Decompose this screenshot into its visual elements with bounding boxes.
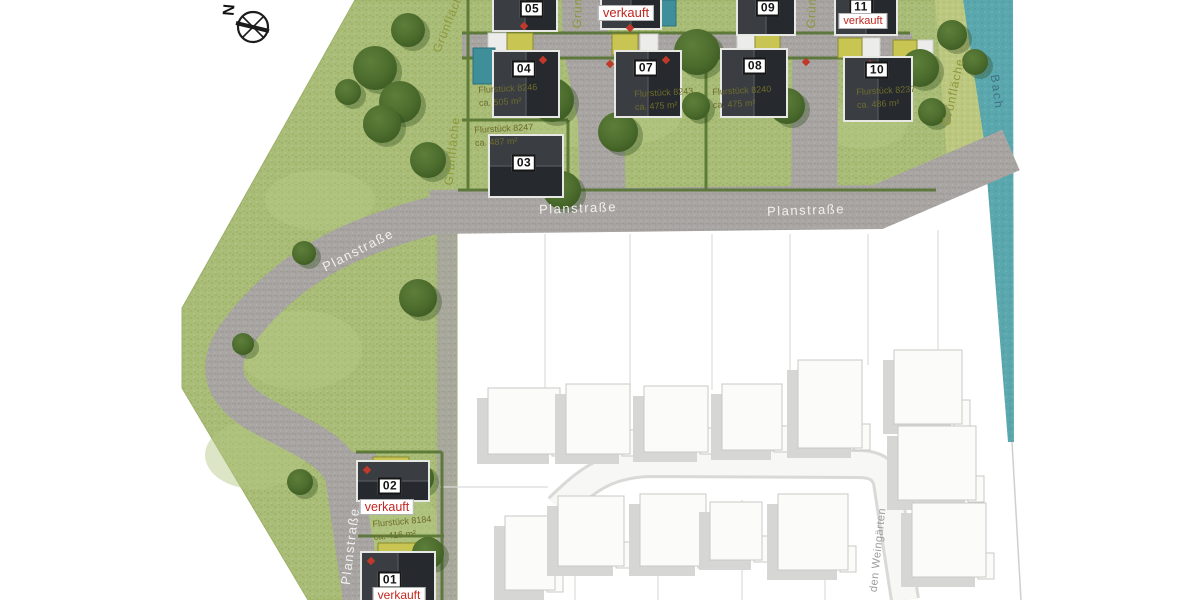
sold-badge-house-02: verkauft [360,499,414,515]
tree [410,142,446,178]
existing-building [798,360,862,448]
existing-building [558,496,624,566]
compass-icon [236,12,269,42]
tree [232,333,254,355]
tree [292,241,316,265]
tree [363,105,401,143]
existing-building [722,384,782,450]
house-number-plaque-03: 03 [512,155,536,172]
compass-north-label: N [221,3,240,16]
house-number-plaque-05: 05 [520,1,544,18]
parcel-label-house-07: Flurstück 8243 ca. 475 m² [634,85,694,114]
sold-badge-house-01: verkauft [373,587,426,600]
house-number-plaque-07: 07 [634,60,658,77]
site-plan: N Planstraße Planstraße Planstraße Plans… [0,0,1200,600]
tree [399,279,437,317]
green-area-label-access-road-1: Grünfläche [570,0,586,29]
tree [391,13,425,47]
tree [937,20,967,50]
parcel-label-house-03: Flurstück 8247 ca. 487 m² [474,121,534,150]
site-plan-graphic [0,0,1200,600]
street-label-planstrasse-main-east: Planstraße [767,201,845,219]
house-number-plaque-10: 10 [865,62,889,79]
parcel-label-house-02: Flurstück 8184 ca. 416 m² [372,513,433,544]
house-number-plaque-01: 01 [378,572,402,589]
existing-building [640,494,706,566]
tree [335,79,361,105]
house-number-plaque-02: 02 [378,478,402,495]
garage-box [838,38,862,58]
existing-building [898,426,976,500]
parcel-label-house-08: Flurstück 8240 ca. 475 m² [712,83,772,112]
street-label-planstrasse-main-west: Planstraße [539,199,617,217]
green-area-label-access-road-2: Grünfläche [804,0,820,29]
sold-badge-house-11: verkauft [838,13,887,29]
tree [287,469,313,495]
parcel-label-house-04: Flurstück 8246 ca. 505 m² [478,81,538,110]
existing-building [894,350,962,424]
sold-badge-house-06: verkauft [598,5,654,21]
house-number-plaque-08: 08 [743,58,767,75]
existing-building [912,503,986,577]
parking-pad [862,38,880,58]
existing-building [710,502,762,560]
house-number-plaque-09: 09 [756,0,780,17]
existing-building [566,384,630,454]
house-number-plaque-04: 04 [512,61,536,78]
existing-building [778,494,848,570]
existing-building [644,386,708,452]
existing-building [488,388,560,454]
parcel-label-house-10: Flurstück 8237 ca. 486 m² [856,83,916,112]
garden-pool [473,48,495,84]
plan-edge-line [1012,442,1021,600]
